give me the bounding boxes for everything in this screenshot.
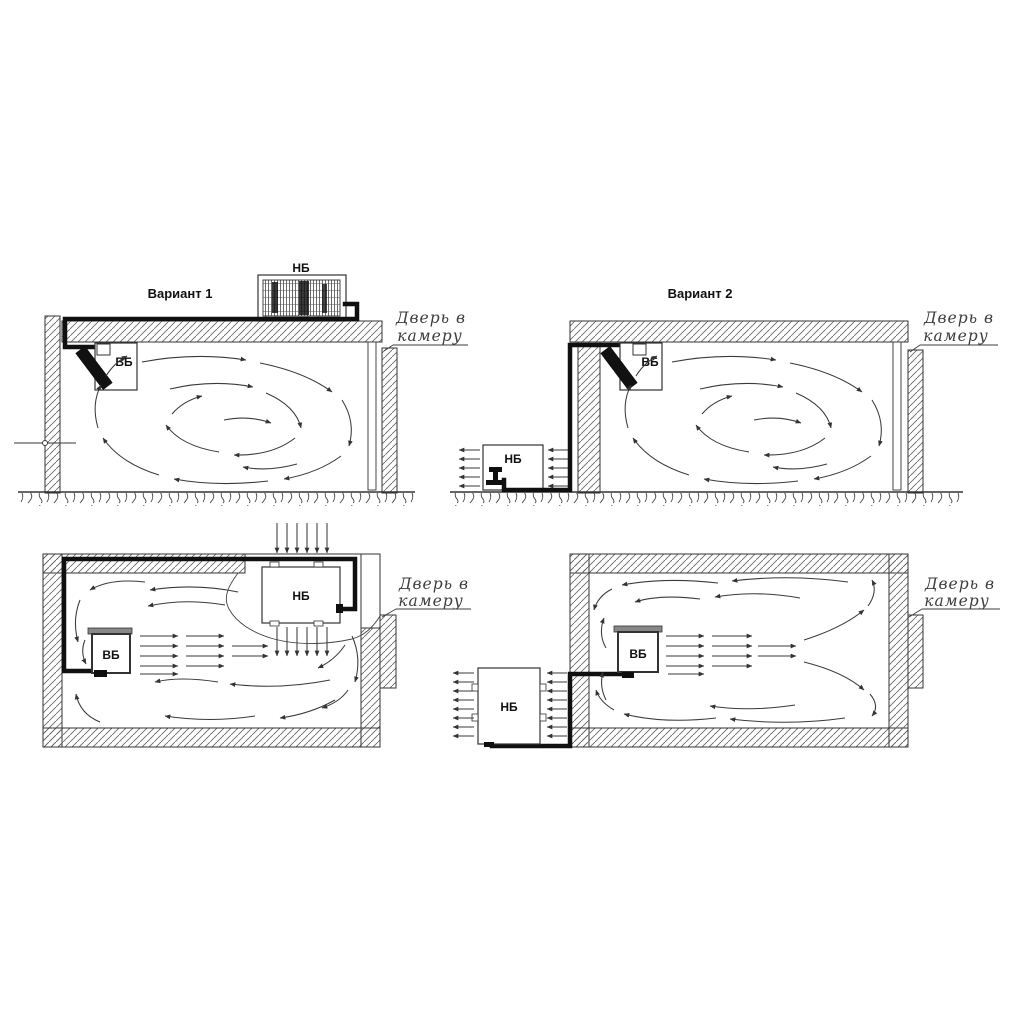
door-block <box>908 350 923 493</box>
chamber-left-wall <box>578 342 600 493</box>
chamber-right-wall <box>889 554 908 747</box>
outdoor-unit-roof <box>258 275 346 321</box>
outdoor-unit-label: НБ <box>500 700 518 714</box>
variant2-title: Вариант 2 <box>668 286 733 301</box>
door-note-line1: Дверь в <box>924 575 995 593</box>
refrigeration-airflow-diagram: Вариант 1 НБ ВБ <box>0 0 1024 1024</box>
door-note-line1: Дверь в <box>395 309 466 327</box>
outdoor-unit-label: НБ <box>504 452 522 466</box>
indoor-unit-mount <box>633 344 646 355</box>
indoor-unit-label: ВБ <box>641 355 659 369</box>
door-callout: Дверь в камеру <box>384 309 468 351</box>
variant2-plan-view-panel: НБ ВБ <box>453 554 1000 747</box>
chamber-top-wall <box>570 554 908 573</box>
door-note-line1: Дверь в <box>923 309 994 327</box>
door-block <box>382 348 397 493</box>
ground-hatch <box>450 493 963 506</box>
variant2-side-view-panel: Вариант 2 НБ <box>450 286 998 506</box>
chamber-ceiling <box>62 321 382 342</box>
door-callout: Дверь в камеру <box>910 309 998 352</box>
door-note-line1: Дверь в <box>398 575 469 593</box>
chamber-left-wall <box>43 554 62 747</box>
ground-hatch <box>18 493 415 506</box>
chamber-right-wall <box>368 342 376 490</box>
chamber-right-wall <box>893 342 901 490</box>
chamber-right-wall-hatch <box>361 628 380 728</box>
door-note-line2: камеру <box>924 592 989 610</box>
indoor-unit-mount <box>97 344 110 355</box>
outdoor-unit-label: НБ <box>292 589 310 603</box>
door-callout: Дверь в камеру <box>909 575 1000 617</box>
chamber-bottom-wall <box>43 728 380 747</box>
chamber-left-wall <box>570 554 589 747</box>
airflow-arrows <box>625 356 881 484</box>
indoor-unit-label: ВБ <box>102 648 120 662</box>
indoor-unit-label: ВБ <box>629 647 647 661</box>
variant1-title: Вариант 1 <box>148 286 213 301</box>
chamber-ceiling <box>570 321 908 342</box>
door-note-line2: камеру <box>923 327 988 345</box>
door-block <box>380 615 396 688</box>
diagram-canvas: Вариант 1 НБ ВБ <box>0 0 1024 1024</box>
door-block <box>908 615 923 688</box>
chamber-left-wall <box>45 316 60 493</box>
wall-drain-detail <box>14 441 76 446</box>
door-note-line2: камеру <box>397 327 462 345</box>
door-note-line2: камеру <box>398 592 463 610</box>
outdoor-unit-label: НБ <box>292 261 310 275</box>
variant1-plan-view-panel: НБ ВБ <box>43 523 471 747</box>
chamber-bottom-wall <box>570 728 908 747</box>
variant1-side-view-panel: Вариант 1 НБ ВБ <box>14 261 468 506</box>
door-callout: Дверь в камеру <box>382 575 471 617</box>
